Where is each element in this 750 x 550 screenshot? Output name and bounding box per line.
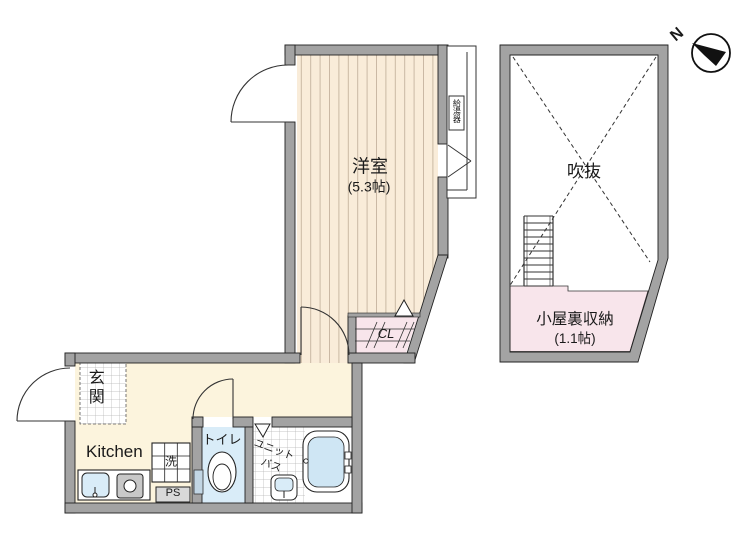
- floor-plan-drawing: [0, 0, 750, 550]
- attic-size-label: (1.1帖): [554, 332, 595, 346]
- void-label: 吹抜: [567, 163, 601, 181]
- door-room-upper-left: [231, 65, 288, 122]
- washer-label: 洗: [165, 456, 177, 469]
- floor-plan: 洋室 (5.3帖) 吹抜 小屋裏収納 (1.1帖) Kitchen 玄関 トイレ…: [0, 0, 750, 550]
- room-label: 洋室: [352, 158, 388, 177]
- room-size-label: (5.3帖): [348, 180, 391, 195]
- pipe-space-label: PS: [166, 488, 181, 500]
- toilet-label: トイレ: [202, 433, 241, 447]
- bath-basin: [271, 475, 297, 500]
- closet-label: CL: [378, 327, 395, 341]
- kitchen-label: Kitchen: [86, 443, 143, 461]
- bathtub: [303, 431, 351, 492]
- compass-icon: [692, 34, 730, 72]
- loft-ladder: [524, 216, 553, 286]
- entrance-label: 玄関: [85, 369, 102, 407]
- kitchen-counter: [78, 470, 150, 500]
- door-entry: [17, 368, 70, 421]
- water-heater-label: 給湯器: [452, 99, 460, 123]
- attic-label: 小屋裏収納: [536, 312, 614, 328]
